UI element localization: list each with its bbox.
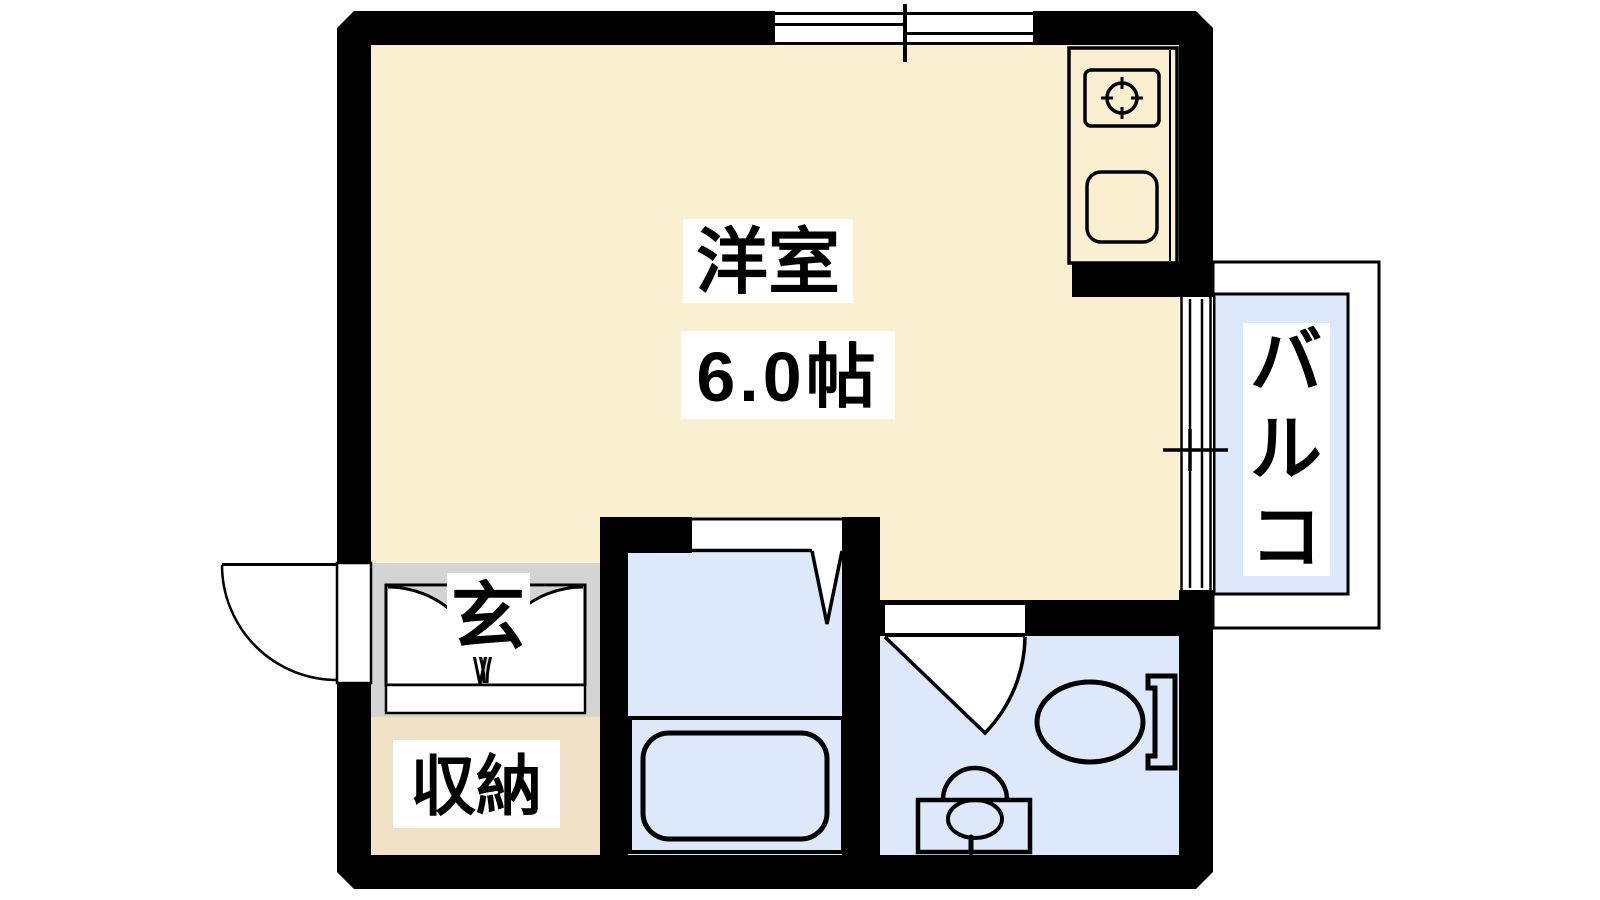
bathroom-toilet-divider-wall — [842, 517, 880, 855]
entrance-label: 玄 — [451, 576, 525, 659]
genkan-step — [386, 685, 585, 713]
entrance-door-opening — [337, 563, 371, 683]
storage-label: 収納 — [410, 749, 542, 823]
balcony-door-opening — [1179, 297, 1213, 590]
floor-plan-page: 洋室 6.0帖 玄 収納 バルコ — [0, 0, 1600, 900]
living-room-size-label: 6.0帖 — [696, 338, 879, 416]
floor-plan-canvas: 洋室 6.0帖 玄 収納 バルコ — [0, 0, 1600, 900]
toilet-door-opening — [885, 602, 1025, 634]
living-room-label: 洋室 — [696, 223, 840, 303]
kitchen-bottom-wall — [1072, 263, 1213, 297]
kitchen-unit — [1069, 48, 1177, 263]
balcony-label: バルコ — [1250, 322, 1322, 578]
bathroom-floor — [628, 553, 842, 855]
bathroom-left-wall — [600, 517, 628, 855]
living-room-floor — [371, 45, 1180, 600]
bathroom-door-opening — [692, 517, 842, 553]
